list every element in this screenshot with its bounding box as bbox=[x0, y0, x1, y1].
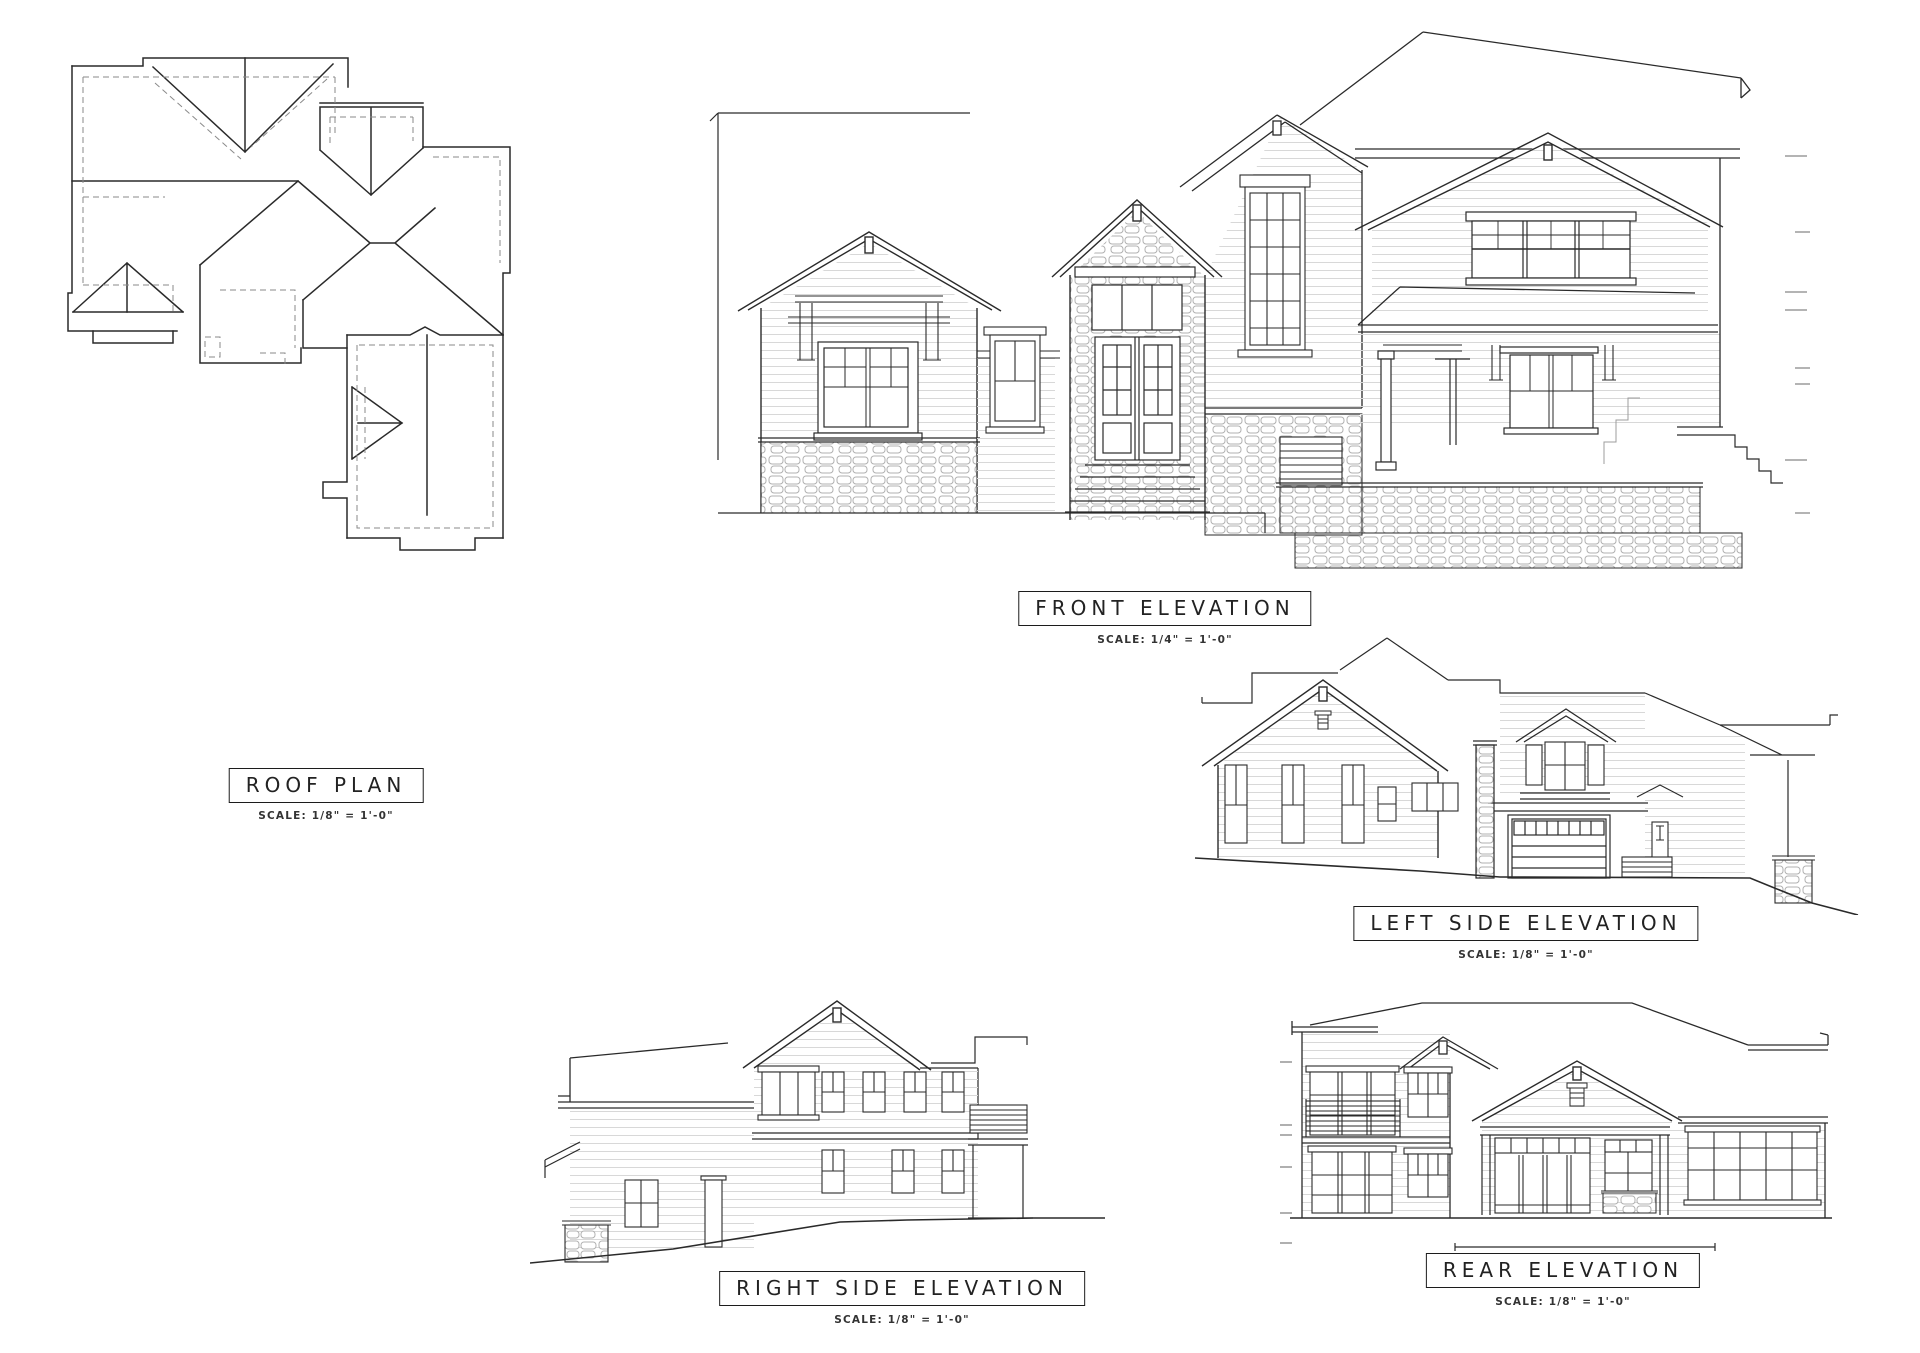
left-side-elevation-scale: SCALE: 1/8" = 1'-0" bbox=[1458, 949, 1594, 961]
roof-plan-linework bbox=[55, 35, 630, 735]
left-side-elevation-linework bbox=[1190, 625, 1890, 915]
front-elevation-linework bbox=[700, 15, 1810, 595]
rear-elevation-drawing bbox=[1280, 995, 1840, 1265]
front-elevation-title: FRONT ELEVATION bbox=[1018, 591, 1311, 626]
rear-elevation-scale: SCALE: 1/8" = 1'-0" bbox=[1495, 1296, 1631, 1308]
left-side-elevation-title: LEFT SIDE ELEVATION bbox=[1353, 906, 1698, 941]
right-side-elevation-title: RIGHT SIDE ELEVATION bbox=[719, 1271, 1085, 1306]
roof-plan-title: ROOF PLAN bbox=[229, 768, 424, 803]
rear-elevation-title: REAR ELEVATION bbox=[1426, 1253, 1700, 1288]
right-side-elevation-linework bbox=[530, 1000, 1230, 1290]
front-elevation-drawing bbox=[700, 15, 1810, 595]
roof-plan-drawing bbox=[55, 35, 630, 735]
right-side-elevation-scale: SCALE: 1/8" = 1'-0" bbox=[834, 1314, 970, 1326]
right-side-elevation-drawing bbox=[530, 1000, 1230, 1290]
rear-elevation-linework bbox=[1280, 995, 1840, 1265]
roof-plan-scale: SCALE: 1/8" = 1'-0" bbox=[258, 810, 394, 822]
left-side-elevation-drawing bbox=[1190, 625, 1890, 915]
architectural-drawing-sheet: ROOF PLAN SCALE: 1/8" = 1'-0" bbox=[0, 0, 1920, 1353]
